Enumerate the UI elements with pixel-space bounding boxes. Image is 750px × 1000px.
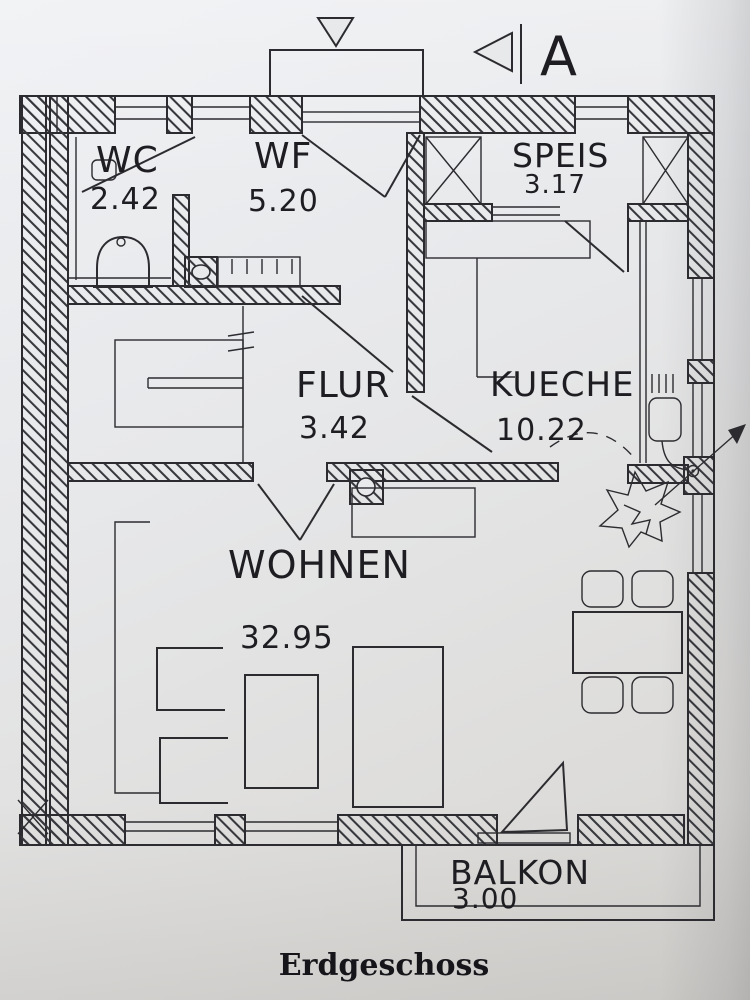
room-area-wf: 5.20 [248, 184, 319, 219]
wall-unit-line [115, 522, 160, 793]
toilet-symbol [93, 237, 153, 287]
room-area-flur: 3.42 [299, 411, 370, 446]
room-area-kueche: 10.22 [496, 413, 587, 448]
wohnen-door [258, 484, 334, 540]
room-area-wohnen: 32.95 [240, 620, 334, 656]
window-top-1 [115, 107, 167, 119]
floor-title: Erdgeschoss [279, 948, 489, 983]
room-labels: WC 2.42 WF 5.20 SPEIS 3.17 FLUR 3.42 KUE… [90, 136, 635, 915]
window-top-2 [192, 107, 250, 119]
room-area-wc: 2.42 [90, 182, 161, 217]
cooktop-symbol [652, 374, 673, 393]
room-label-kueche: KUECHE [490, 365, 635, 405]
window-bottom-1 [125, 822, 215, 831]
window-right-1 [693, 278, 702, 360]
wf-flur-door [302, 296, 393, 372]
window-top-3 [575, 107, 628, 119]
section-arrow-icon [475, 33, 512, 71]
speis-door [492, 206, 628, 272]
sofa-symbol-2 [160, 738, 228, 803]
floor-plan-drawing: A WC 2.42 WF 5.20 SPEIS 3.17 FLUR 3.42 K… [0, 0, 750, 1000]
room-label-wf: WF [254, 136, 312, 177]
entrance-porch [270, 50, 423, 96]
furniture-rect-symbol [353, 647, 443, 807]
stairs-symbol [115, 340, 243, 427]
entrance-door [302, 112, 420, 197]
coffee-table-symbol [245, 675, 318, 788]
room-area-balkon: 3.00 [452, 882, 518, 915]
sofa-symbol-1 [157, 648, 225, 710]
entrance-triangle-marker [318, 18, 353, 46]
room-area-speis: 3.17 [524, 170, 586, 200]
window-bottom-2 [245, 822, 338, 831]
room-label-wohnen: WOHNEN [228, 543, 411, 587]
room-label-flur: FLUR [296, 365, 390, 406]
shelf-x-symbol-right [643, 137, 688, 204]
flue-symbol-wohnen [350, 470, 383, 504]
section-marker-label: A [540, 25, 578, 88]
kueche-door [412, 396, 492, 452]
window-right-2 [693, 383, 702, 457]
dining-table-symbol [573, 571, 682, 713]
flue-symbol-wf [185, 257, 217, 287]
section-marker: A [475, 24, 578, 88]
room-label-wc: WC [96, 140, 159, 181]
section-cut-line [228, 306, 254, 462]
radiator-symbol [218, 257, 300, 287]
window-right-3 [693, 494, 702, 573]
shelf-x-symbol-left [426, 137, 481, 204]
floorplan-scan-page: { "plan": { "title": "Erdgeschoss", "sec… [0, 0, 750, 1000]
